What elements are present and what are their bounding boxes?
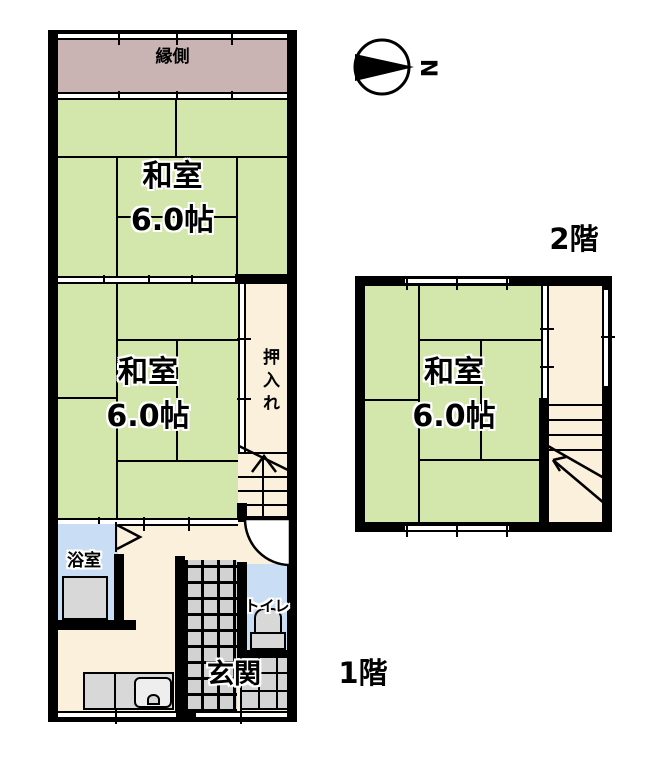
washitsu-1f-front-label: 和室 bbox=[58, 160, 287, 193]
oshiire-label: 押入れ bbox=[250, 312, 278, 452]
window-2f-right bbox=[602, 290, 610, 386]
window-tick bbox=[456, 523, 458, 537]
window-tick bbox=[506, 523, 508, 537]
kitchen-sink-drain bbox=[147, 694, 160, 705]
fusuma-tick bbox=[540, 366, 554, 368]
washitsu-1f-back-size: 6.0帖 bbox=[58, 400, 238, 433]
washitsu-2f-label: 和室 bbox=[365, 356, 543, 389]
genkan-label: 玄関 bbox=[188, 660, 280, 690]
stair-step bbox=[549, 419, 602, 421]
tatami-line bbox=[58, 156, 287, 158]
window-tick bbox=[118, 31, 120, 45]
interior-wall-2f bbox=[539, 398, 549, 522]
engawa-label: 縁側 bbox=[58, 48, 287, 67]
washitsu-1f-front-size: 6.0帖 bbox=[58, 204, 287, 237]
toilet-label: トイレ bbox=[242, 598, 292, 615]
fusuma-tick bbox=[540, 328, 554, 330]
closet-stair-divider bbox=[238, 452, 287, 454]
fusuma-tick bbox=[237, 338, 251, 340]
floor-label-2f: 2階 bbox=[534, 224, 614, 256]
genkan-wall bbox=[175, 556, 185, 722]
kitchen-counter-divider bbox=[114, 674, 116, 708]
window-engawa-inner bbox=[58, 92, 287, 100]
window-tick bbox=[406, 276, 408, 290]
fusuma-door-2f bbox=[541, 286, 549, 400]
window-2f-top bbox=[405, 277, 509, 285]
window-tick bbox=[456, 276, 458, 290]
stair-step bbox=[549, 449, 602, 451]
window-tick bbox=[240, 710, 242, 724]
oshiire-fusuma-door bbox=[238, 284, 246, 454]
floorplan-canvas: 縁側 和室 6.0帖 和室 6.0帖 押入れ 浴室 bbox=[0, 0, 655, 763]
window-tick bbox=[115, 710, 117, 724]
fusuma-tick bbox=[143, 517, 145, 531]
fusuma-door bbox=[58, 276, 235, 284]
fusuma-tick bbox=[237, 398, 251, 400]
bathtub bbox=[62, 576, 108, 620]
window-bottom bbox=[196, 711, 287, 719]
bathroom-wall bbox=[114, 554, 124, 624]
stair-step bbox=[549, 434, 602, 436]
window-tick bbox=[506, 276, 508, 290]
washitsu-2f-size: 6.0帖 bbox=[365, 400, 543, 433]
interior-wall-post bbox=[237, 503, 247, 518]
bathroom-wall bbox=[48, 620, 136, 630]
north-label: N bbox=[415, 56, 439, 80]
window-tick bbox=[231, 31, 233, 45]
window-tick bbox=[176, 31, 178, 45]
toilet-wall bbox=[237, 650, 297, 658]
window-top bbox=[58, 32, 287, 40]
window-tick bbox=[601, 336, 615, 338]
window-2f-bottom bbox=[405, 524, 509, 532]
toilet-icon-tank bbox=[250, 632, 286, 650]
window-tick bbox=[406, 523, 408, 537]
tatami-line bbox=[175, 100, 177, 158]
window-bottom bbox=[58, 711, 176, 719]
stair-step bbox=[549, 404, 602, 406]
floor-label-1f: 1階 bbox=[323, 658, 403, 690]
washitsu-1f-back-label: 和室 bbox=[58, 356, 238, 389]
bathroom-label: 浴室 bbox=[56, 552, 112, 571]
stair-center-line bbox=[262, 458, 264, 518]
compass-circle-icon bbox=[355, 40, 409, 94]
fusuma-tick bbox=[188, 517, 190, 531]
interior-wall bbox=[235, 274, 287, 284]
compass-needle-icon bbox=[355, 54, 414, 81]
